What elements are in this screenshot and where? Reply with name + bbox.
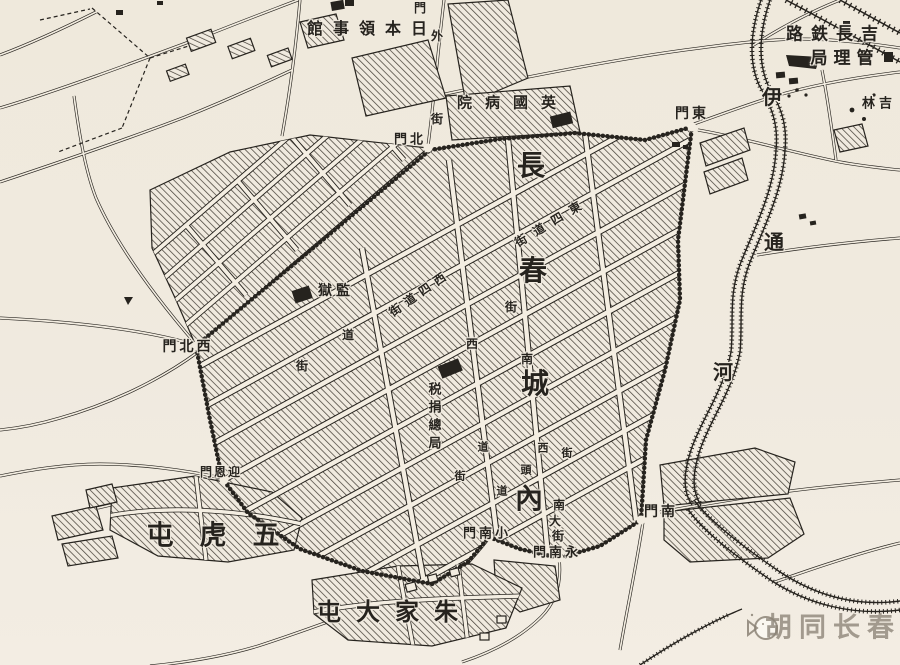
gate-east [688,123,697,132]
block-british-hospital [446,86,580,140]
block-north-strip [448,0,528,104]
block-west-small-1 [52,506,103,540]
block-east-small [834,124,868,152]
gate-small-south [485,533,494,542]
fish-logo [748,614,777,639]
block-west-small-2 [62,536,118,566]
historical-map-changchun: 館事領本日門外街院病國英路鉄長吉局理管林吉伊通河門東門北門北西門恩迎門南小門南永… [0,0,900,665]
bld-consulate [330,0,344,11]
field-boundary-lines [40,8,208,152]
block-north-small [300,14,344,48]
map-svg [0,0,900,665]
bld-railway-bureau [786,55,820,69]
tributary-stream [640,609,742,665]
gate-south [637,516,646,525]
block-south-gate-east-1 [660,448,795,506]
gate-yongnan [555,554,564,563]
gate-northwest [192,342,201,351]
marker-triangle [124,297,133,305]
hatched-districts [52,0,868,646]
gate-north [424,144,433,153]
roadside-blocks [158,7,292,101]
railway-jichang [786,0,900,62]
gate-southwest [220,476,229,485]
tributary-stream-ticks [640,615,728,665]
yitong-river [640,0,900,665]
